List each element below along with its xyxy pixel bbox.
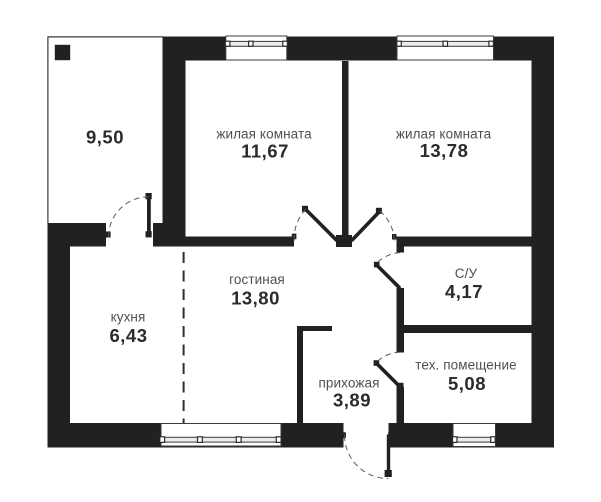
svg-text:жилая комната: жилая комната bbox=[216, 127, 312, 142]
svg-text:13,80: 13,80 bbox=[231, 288, 280, 309]
svg-text:гостиная: гостиная bbox=[229, 272, 285, 287]
svg-text:3,89: 3,89 bbox=[333, 389, 371, 410]
svg-text:кухня: кухня bbox=[111, 310, 146, 325]
svg-text:жилая комната: жилая комната bbox=[396, 126, 492, 141]
svg-text:13,78: 13,78 bbox=[420, 140, 469, 161]
svg-text:9,50: 9,50 bbox=[86, 127, 124, 148]
svg-text:4,17: 4,17 bbox=[445, 281, 483, 302]
svg-text:тех. помещение: тех. помещение bbox=[415, 358, 516, 373]
svg-text:С/У: С/У bbox=[455, 266, 478, 281]
svg-text:прихожая: прихожая bbox=[319, 376, 380, 391]
svg-text:6,43: 6,43 bbox=[109, 325, 147, 346]
svg-text:5,08: 5,08 bbox=[448, 373, 486, 394]
svg-text:11,67: 11,67 bbox=[241, 141, 289, 162]
